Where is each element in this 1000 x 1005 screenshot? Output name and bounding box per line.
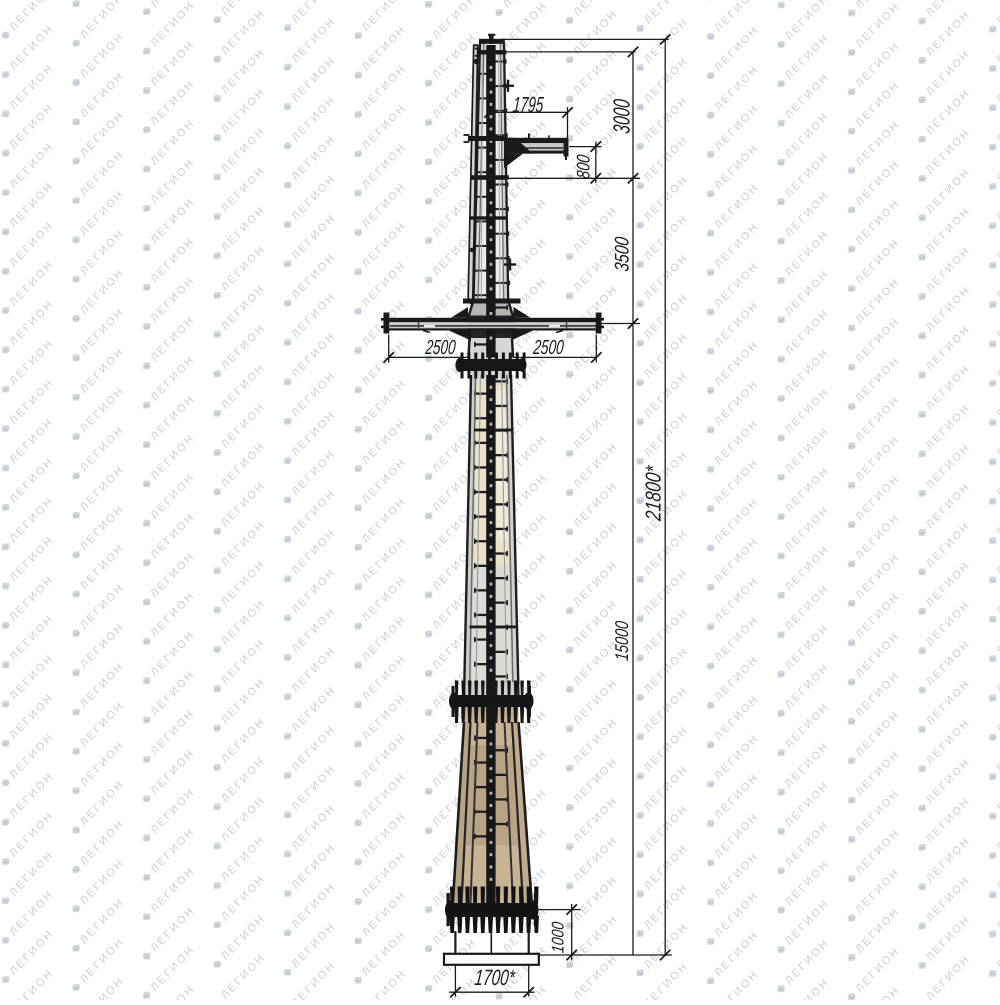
svg-text:800: 800: [574, 153, 594, 180]
svg-text:15000: 15000: [611, 619, 632, 662]
svg-text:1000: 1000: [549, 921, 568, 954]
svg-text:3500: 3500: [611, 236, 633, 273]
svg-text:1700*: 1700*: [473, 966, 516, 990]
svg-text:21800*: 21800*: [642, 463, 666, 522]
svg-text:2500: 2500: [532, 335, 566, 358]
svg-text:2500: 2500: [424, 335, 457, 359]
svg-text:3000: 3000: [609, 98, 635, 135]
